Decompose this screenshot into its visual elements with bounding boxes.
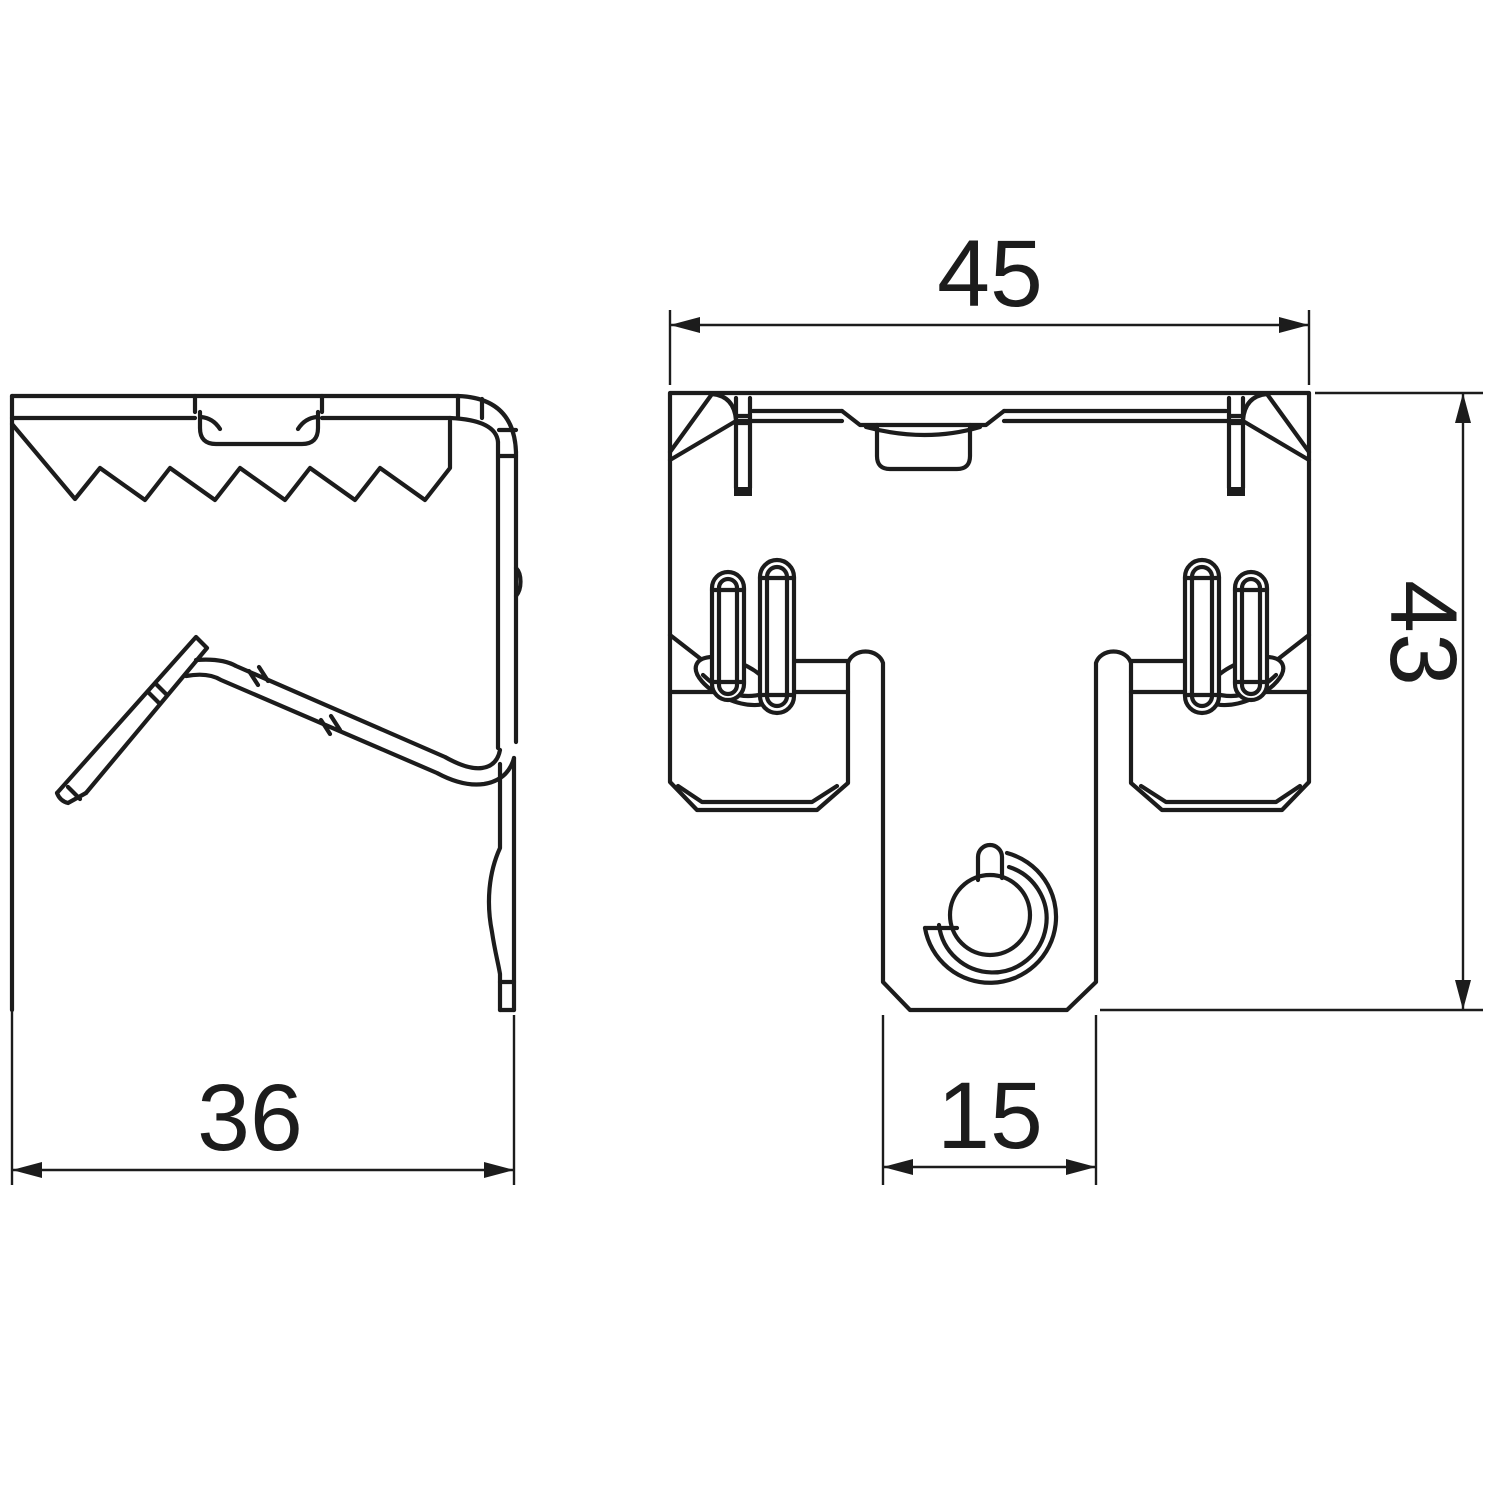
front-left-corner-folds [670, 394, 736, 460]
dim43-arrow-bottom [1455, 980, 1471, 1010]
technical-drawing-sheet: 36 [0, 0, 1500, 1500]
dim45-arrow-left [670, 317, 700, 333]
dim43-extension-lines [1100, 393, 1483, 1010]
dim15-arrow-right [1066, 1159, 1096, 1175]
side-spring-arm-upper [196, 660, 500, 769]
drawing-canvas: 36 [0, 0, 1500, 1500]
side-view [12, 396, 521, 1010]
dimension-front-width: 45 [670, 221, 1309, 385]
side-spring-blade-ticks [68, 684, 167, 799]
front-recess [842, 411, 1004, 425]
front-right-post [1229, 398, 1243, 488]
front-right-corner-folds [1243, 394, 1309, 460]
front-right-corner-arc [1243, 394, 1267, 420]
side-corner-inner-arc [450, 418, 498, 442]
front-view [670, 393, 1309, 1010]
front-recess-sag [866, 427, 980, 435]
dim15-label: 15 [937, 1063, 1043, 1169]
side-spring-blade [57, 637, 207, 793]
front-keyhole [925, 845, 1056, 983]
dimension-front-height: 43 [1100, 393, 1483, 1010]
front-right-leg-hem [1141, 786, 1300, 802]
dimension-channel-width: 15 [883, 1015, 1096, 1185]
side-top-tab-reliefs [201, 417, 317, 429]
dim45-arrow-right [1279, 317, 1309, 333]
keyhole-collar-outer-arc [925, 853, 1056, 983]
side-serrated-teeth [12, 421, 450, 500]
dim15-arrow-left [883, 1159, 913, 1175]
front-right-post-cap [1227, 487, 1245, 496]
dim43-label: 43 [1370, 580, 1476, 686]
front-left-post [736, 398, 750, 488]
dim36-arrow-left [12, 1162, 42, 1178]
dim36-label: 36 [197, 1065, 303, 1171]
front-slots [712, 560, 1267, 713]
keyhole-hole [950, 875, 1030, 955]
dim36-arrow-right [484, 1162, 514, 1178]
side-top-notch [195, 396, 322, 412]
front-left-corner-arc [712, 394, 736, 420]
side-plate-edge-collar [489, 764, 500, 1010]
dim45-label: 45 [937, 221, 1043, 327]
front-left-post-cap [734, 487, 752, 496]
front-left-leg-hem [678, 786, 837, 802]
dim43-arrow-top [1455, 393, 1471, 423]
dimension-side-depth: 36 [12, 1010, 514, 1185]
